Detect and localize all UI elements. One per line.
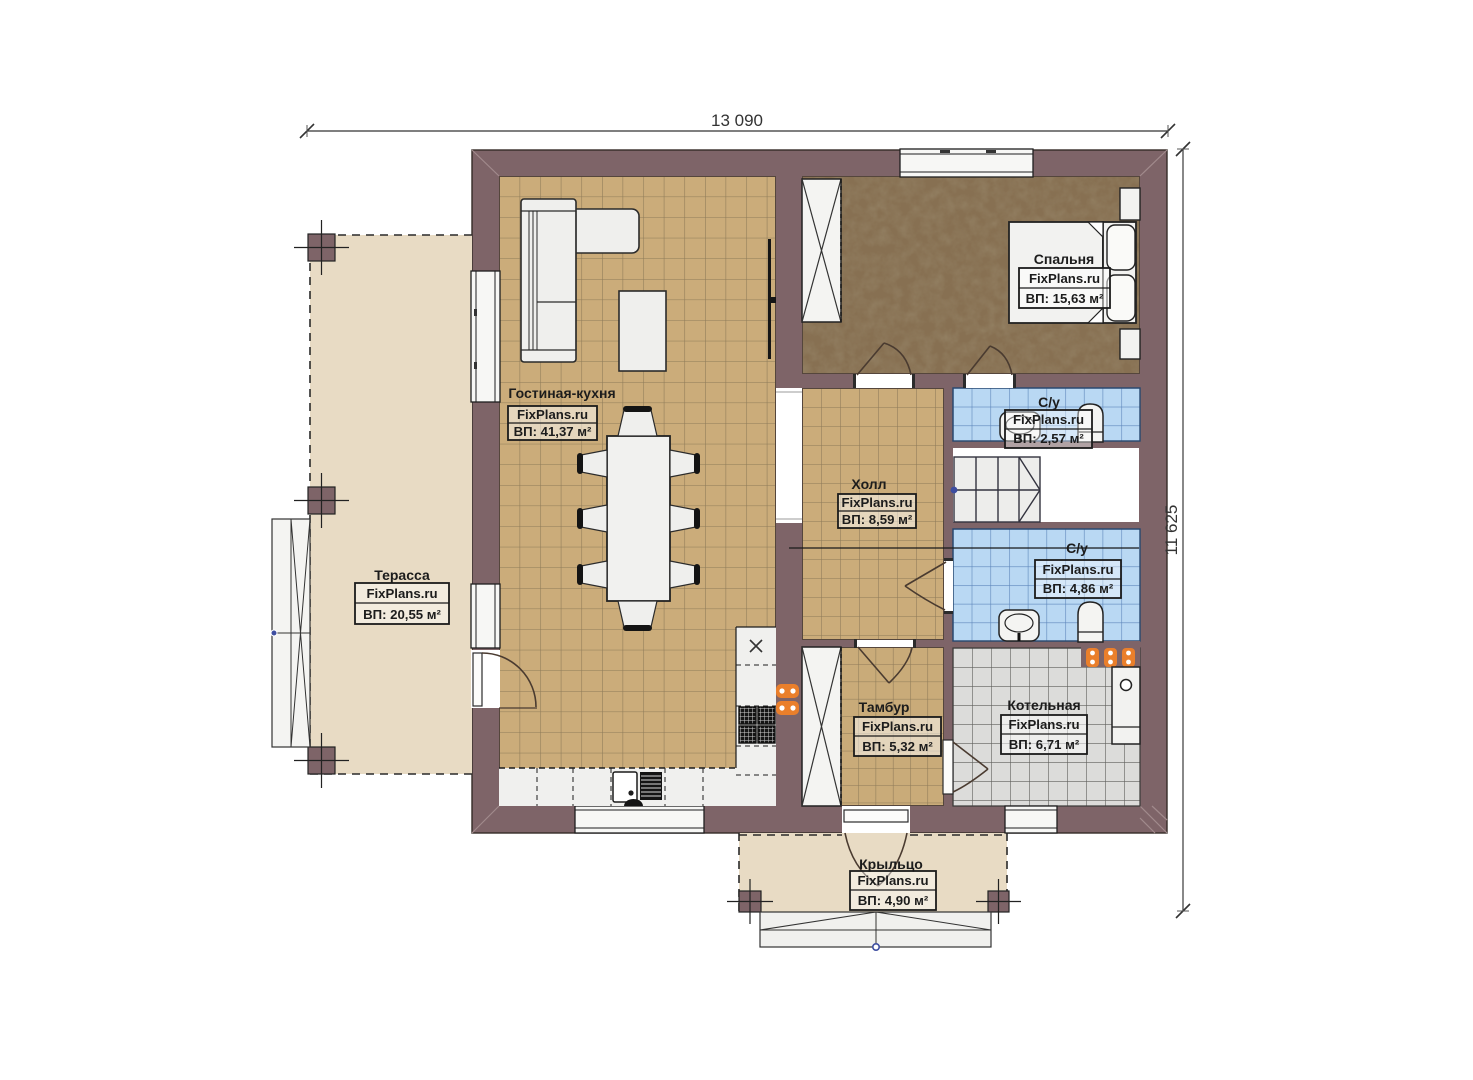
svg-text:Котельная: Котельная [1007,697,1080,713]
svg-text:ВП: 6,71 м²: ВП: 6,71 м² [1009,737,1080,752]
svg-text:ВП: 4,86 м²: ВП: 4,86 м² [1043,581,1114,596]
svg-text:ВП: 4,90 м²: ВП: 4,90 м² [858,893,929,908]
svg-text:FixPlans.ru: FixPlans.ru [1029,271,1100,286]
svg-text:FixPlans.ru: FixPlans.ru [1042,562,1113,577]
svg-text:FixPlans.ru: FixPlans.ru [1008,717,1079,732]
svg-text:ВП: 2,57 м²: ВП: 2,57 м² [1013,431,1084,446]
svg-text:С/у: С/у [1066,540,1088,556]
svg-text:Тамбур: Тамбур [859,699,910,715]
svg-text:С/у: С/у [1038,394,1060,410]
svg-text:ВП: 20,55 м²: ВП: 20,55 м² [363,607,441,622]
svg-text:11 625: 11 625 [1162,505,1181,556]
svg-text:FixPlans.ru: FixPlans.ru [517,407,588,422]
svg-text:ВП: 5,32 м²: ВП: 5,32 м² [862,739,933,754]
svg-text:FixPlans.ru: FixPlans.ru [862,719,933,734]
svg-text:ВП: 8,59 м²: ВП: 8,59 м² [842,512,913,527]
svg-text:Гостиная-кухня: Гостиная-кухня [508,385,615,401]
svg-text:FixPlans.ru: FixPlans.ru [366,586,437,601]
svg-text:FixPlans.ru: FixPlans.ru [1013,412,1084,427]
svg-text:Спальня: Спальня [1034,251,1094,267]
svg-text:FixPlans.ru: FixPlans.ru [857,873,928,888]
svg-text:FixPlans.ru: FixPlans.ru [841,495,912,510]
svg-text:Холл: Холл [851,476,886,492]
svg-text:ВП: 41,37 м²: ВП: 41,37 м² [514,424,592,439]
svg-text:Крыльцо: Крыльцо [859,856,923,872]
svg-text:ВП: 15,63 м²: ВП: 15,63 м² [1026,291,1104,306]
svg-text:Терасса: Терасса [374,567,430,583]
svg-text:13 090: 13 090 [711,111,763,130]
